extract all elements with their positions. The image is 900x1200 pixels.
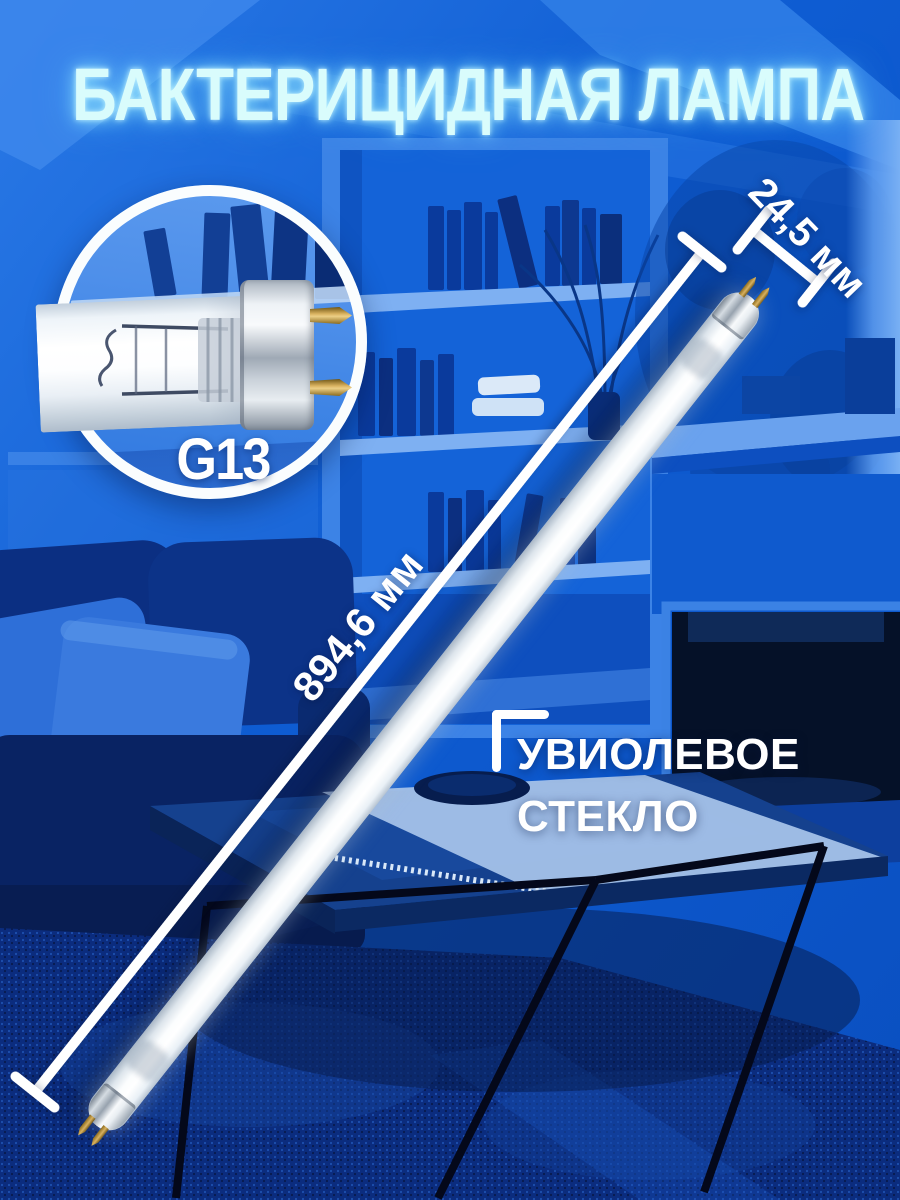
glass-type-callout: УВИОЛЕВОЕ СТЕКЛО	[492, 702, 822, 862]
product-title: БАКТЕРИЦИДНАЯ ЛАМПА	[72, 56, 828, 134]
g13-label: G13	[129, 426, 318, 493]
corner-bracket-icon	[492, 710, 501, 772]
product-image: БАКТЕРИЦИДНАЯ ЛАМПА G13	[0, 0, 900, 1200]
closeup-metal-cap	[240, 280, 314, 430]
callout-line1: УВИОЛЕВОЕ	[517, 730, 800, 780]
callout-line2: СТЕКЛО	[517, 792, 699, 842]
